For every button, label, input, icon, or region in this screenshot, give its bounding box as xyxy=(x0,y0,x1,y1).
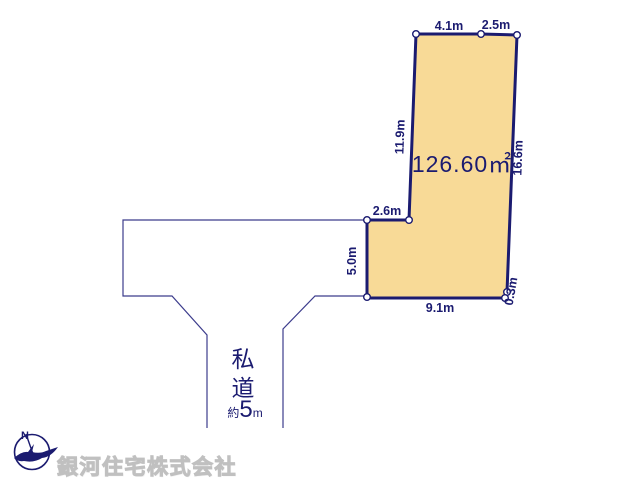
dimension-label-top-right: 2.5m xyxy=(482,18,511,32)
plot-area-label: 126.60㎡ xyxy=(412,151,512,177)
site-plan-page: 4.1m 2.5m 11.9m 16.6m 2.6m 5.0m 9.1m 0.3… xyxy=(0,0,640,480)
dimension-label-top-left: 4.1m xyxy=(435,19,464,33)
compass-icon: N xyxy=(14,430,58,470)
road-width-label: 約5m xyxy=(214,396,276,424)
vertex-marker xyxy=(406,217,413,224)
vertex-marker xyxy=(364,217,371,224)
dimension-label-upper-left: 11.9m xyxy=(392,119,407,154)
road-outline-right xyxy=(283,296,367,428)
dimension-label-right: 16.6m xyxy=(510,140,525,176)
dimension-label-lower-left: 5.0m xyxy=(345,247,359,276)
vertex-marker xyxy=(364,294,371,301)
compass-north-label: N xyxy=(21,430,29,442)
vertex-marker xyxy=(413,31,420,38)
vertex-marker xyxy=(514,32,521,39)
company-watermark: 銀河住宅株式会社 xyxy=(57,451,237,480)
road-width-approx-prefix: 約 xyxy=(227,406,239,420)
road-width-unit: m xyxy=(253,406,263,420)
road-width-value: 5 xyxy=(239,396,252,423)
dimension-label-bottom: 9.1m xyxy=(426,301,455,315)
site-plan-drawing: 4.1m 2.5m 11.9m 16.6m 2.6m 5.0m 9.1m 0.3… xyxy=(0,0,640,480)
dimension-label-setback: 2.6m xyxy=(373,204,402,218)
